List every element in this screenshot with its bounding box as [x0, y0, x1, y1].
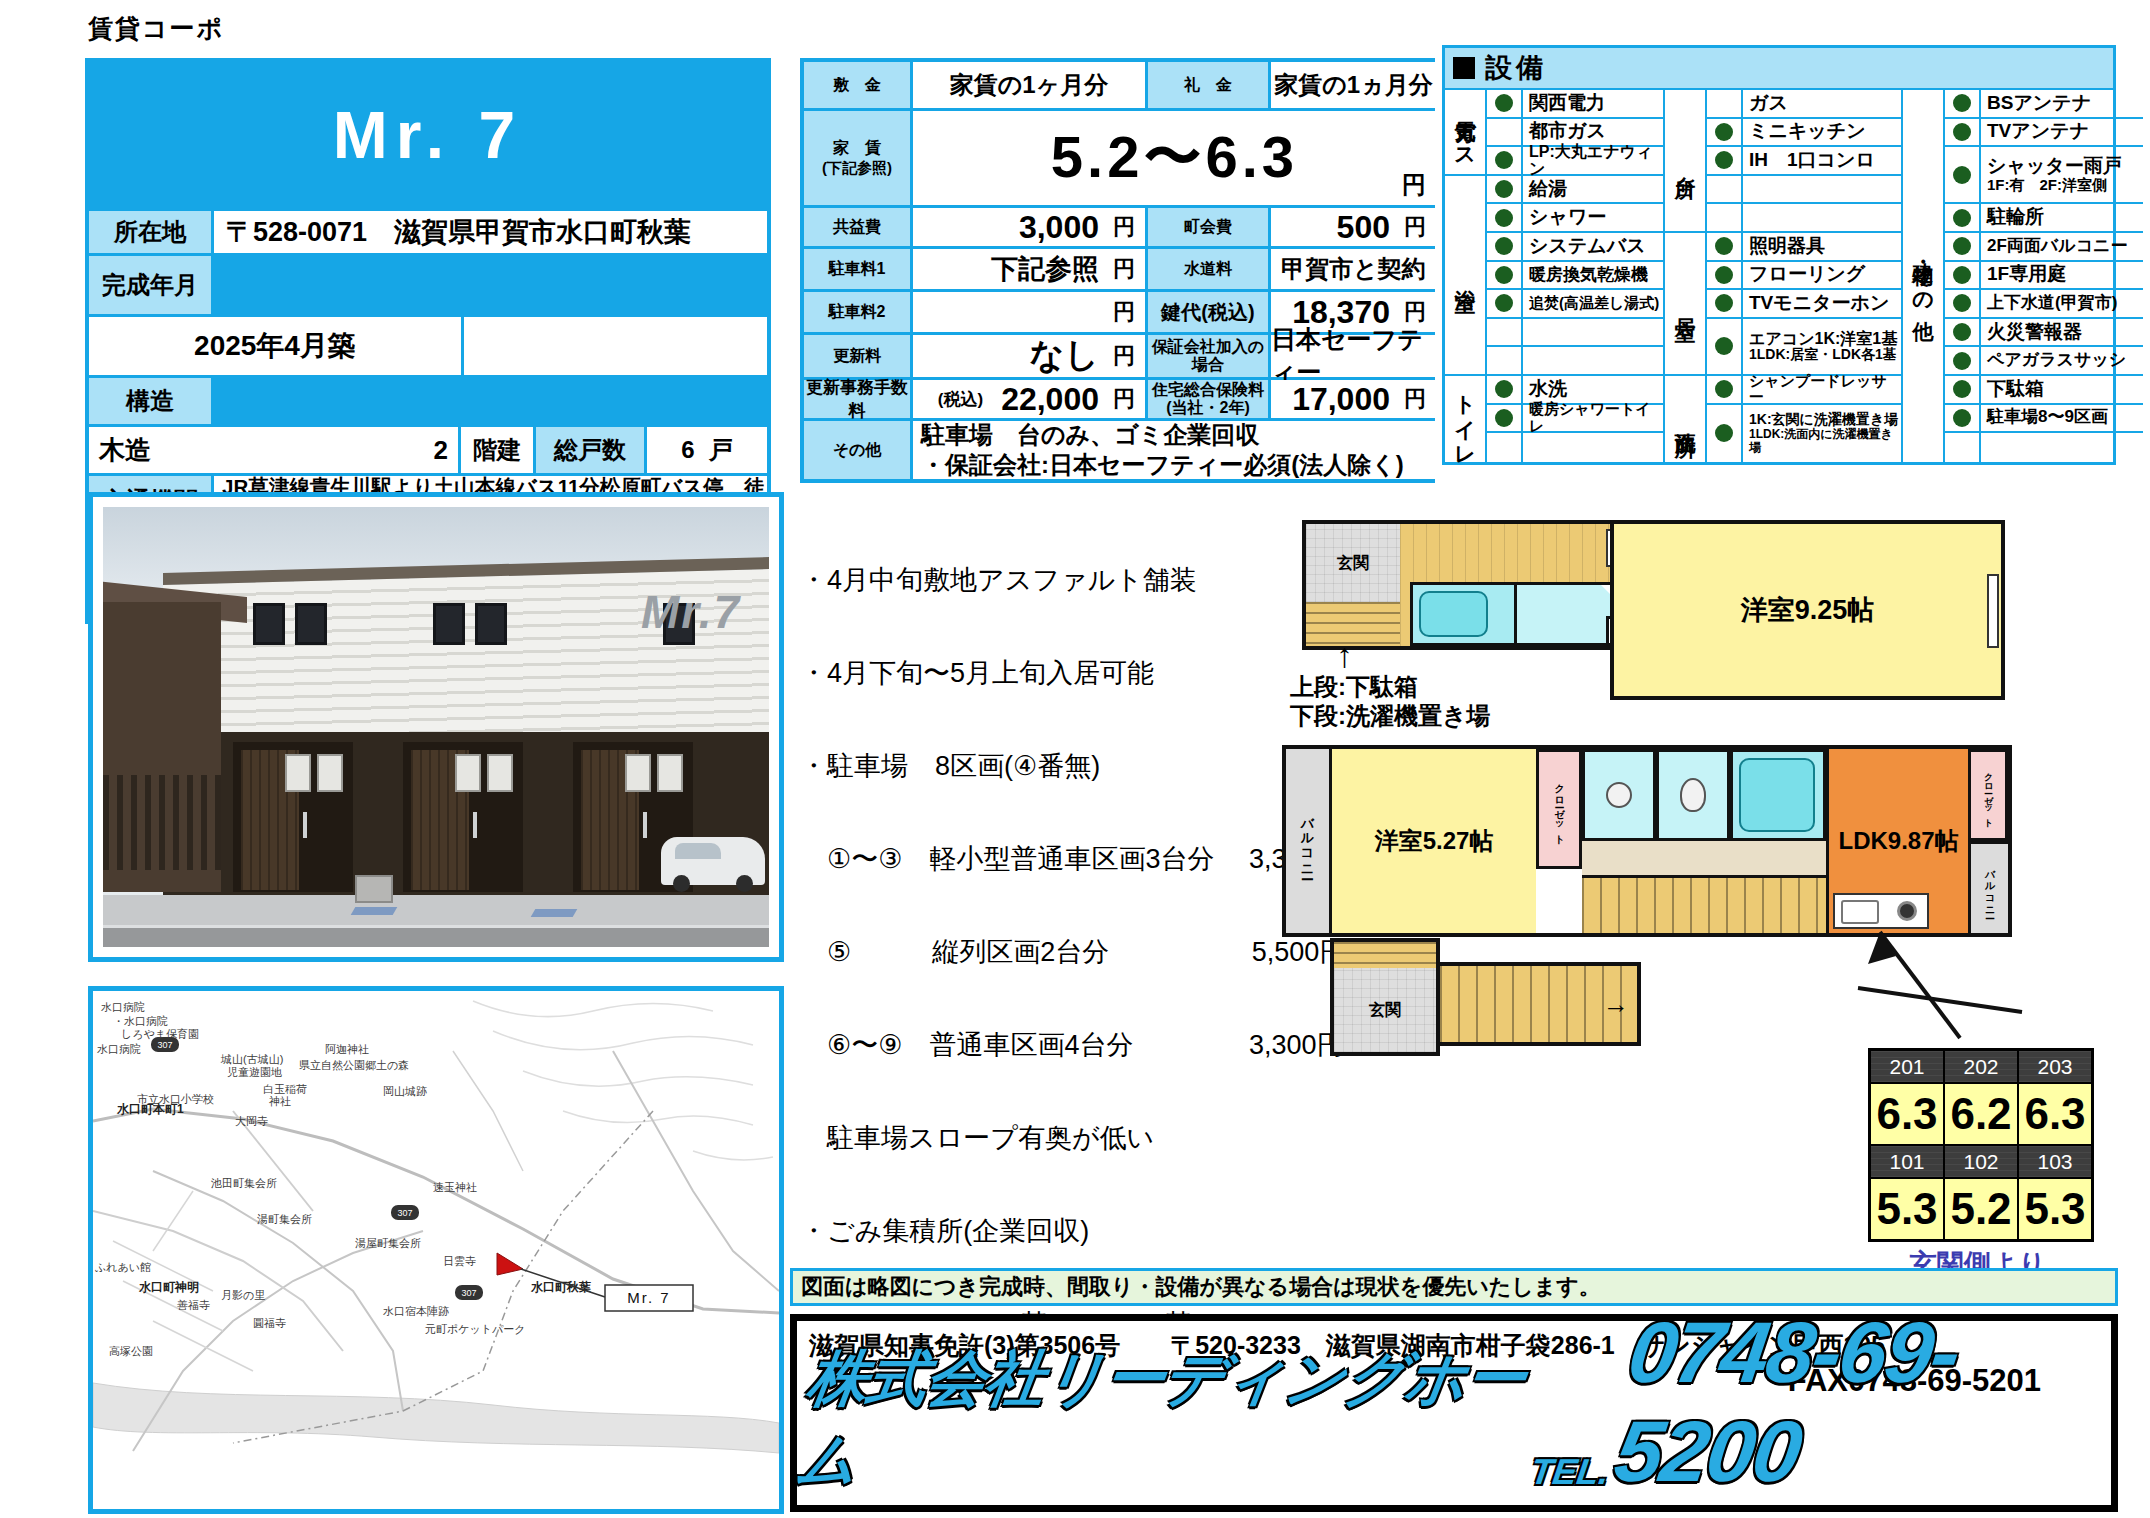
insurance-label: 住宅総合保険料 (当社・2年)	[1148, 380, 1268, 418]
photo-window	[475, 603, 507, 645]
plan2-bath-module	[1730, 749, 1826, 841]
company-tel: 0748-69-5200	[1609, 1303, 2117, 1501]
photo-meter-boxes	[285, 754, 343, 792]
town-fee-label: 町会費	[1148, 208, 1268, 246]
parking1-unit: 円	[1113, 254, 1135, 284]
map-label: 児童遊園地	[227, 1066, 282, 1078]
equipment-dot	[1707, 119, 1743, 146]
equipment-dot	[1487, 262, 1523, 289]
equipment-item: 照明器具	[1749, 236, 1901, 257]
plan2-genkan-steps	[1334, 942, 1436, 968]
route-number: 307	[157, 1040, 172, 1050]
equipment-dot	[1707, 204, 1743, 231]
building-photo: Mr.7	[103, 507, 769, 947]
equipment-dot	[1487, 376, 1523, 403]
floorplan-1ldk: バルコニー 洋室5.27帖 クローゼット LDK9.87帖 クローゼット バルコ…	[1282, 745, 2012, 937]
keymoney-label: 礼 金	[1148, 62, 1268, 108]
room-number: 101	[1871, 1146, 1943, 1177]
parking2-cell: 円	[913, 292, 1145, 332]
units-value: 6	[681, 436, 694, 464]
plan1-window	[1987, 574, 1999, 648]
other-value: 駐車場 台のみ、ゴミ企業回収 ・保証会社:日本セーフティー必須(法人除く)	[913, 421, 1436, 479]
equipment-dot	[1945, 319, 1981, 346]
plan1-room-label: 洋室9.25帖	[1741, 592, 1875, 628]
equipment-dot	[1487, 204, 1523, 231]
parking2-unit: 円	[1113, 297, 1135, 327]
plan2-closet-mid-label: クローゼット	[1554, 777, 1564, 840]
equipment-dot	[1945, 204, 1981, 231]
plan2-balcony-left-label: バルコニー	[1301, 809, 1314, 873]
equipment-dot	[1487, 319, 1523, 346]
equipment-item: シャッター雨戸	[1987, 156, 2143, 177]
photo-window	[433, 603, 465, 645]
insurance-cell: 17,000 円	[1271, 380, 1436, 418]
equipment-group-2: 台所 居室 洗面所 ガス ミニキッチン IH 1口コンロ 照明器具 フローリング…	[1665, 90, 1903, 462]
map-label: 湯町集会所	[257, 1213, 312, 1225]
equipment-item: 給湯	[1529, 179, 1663, 200]
equipment-dot	[1945, 233, 1981, 260]
common-fee-cell: 3,000 円	[913, 208, 1145, 246]
plan2-basin-room	[1582, 749, 1656, 841]
company-name-line: 株式会社リーディングホーム TEL. 0748-69-5200	[791, 1303, 2117, 1501]
photo-window	[295, 603, 327, 645]
equipment-category: 電気ガス	[1445, 90, 1485, 176]
note-line: ・4月下旬〜5月上旬入居可能	[800, 658, 1320, 689]
company-name: 株式会社リーディングホーム	[791, 1339, 1550, 1501]
common-fee-value: 3,000	[1019, 209, 1099, 246]
key-fee-label: 鍵代(税込)	[1148, 292, 1268, 332]
equipment-item: TVアンテナ	[1987, 121, 2143, 142]
room-number: 202	[1945, 1051, 2017, 1082]
photo-panel: Mr.7	[88, 492, 784, 962]
map-label: 圓福寺	[253, 1317, 286, 1329]
keymoney-value: 家賃の1ヵ月分	[1271, 62, 1436, 108]
common-fee-unit: 円	[1113, 212, 1135, 242]
equipment-item: 2F両面バルコニー	[1987, 237, 2143, 256]
built-label: 完成年月	[89, 256, 211, 314]
equipment-item: 水洗	[1529, 379, 1663, 400]
equipment-dot	[1707, 233, 1743, 260]
town-fee-value: 500	[1337, 209, 1390, 246]
rent-label: 家 賃 (下記参照)	[804, 111, 910, 205]
built-row: 2025年4月築	[89, 317, 767, 375]
equipment-dot	[1487, 233, 1523, 260]
map-label: 日雲寺	[443, 1255, 476, 1267]
route-number: 307	[397, 1208, 412, 1218]
plan1-bathtub	[1419, 591, 1488, 637]
equipment-item: 関西電力	[1529, 93, 1663, 114]
parking1-value: 下記参照	[991, 251, 1099, 287]
photo-door-handle	[303, 812, 307, 838]
plan2-stairs	[1582, 875, 1826, 933]
equipment-dot	[1945, 147, 1981, 202]
map-label: 水口町神明	[138, 1280, 199, 1294]
units-label: 総戸数	[536, 427, 644, 473]
room-rent: 6.2	[1945, 1084, 2017, 1144]
room-rent: 6.3	[1871, 1084, 1943, 1144]
renewal-unit: 円	[1113, 341, 1135, 371]
north-arrow	[1850, 920, 2030, 1045]
map-callout-label: Mr. 7	[627, 1289, 670, 1306]
map-label: 水口病院	[97, 1043, 141, 1055]
rent-label-main: 家 賃	[833, 138, 881, 159]
photo-meter-boxes	[455, 754, 513, 792]
equipment-item: IH 1口コンロ	[1749, 150, 1901, 171]
room-number: 103	[2019, 1146, 2091, 1177]
map-label: 池田町集会所	[210, 1177, 277, 1189]
deposit-value: 家賃の1ヶ月分	[913, 62, 1145, 108]
note-line: ・4月中旬敷地アスファルト舗装	[800, 565, 1320, 596]
equipment-dot	[1945, 290, 1981, 317]
equipment-category: 居室	[1665, 233, 1705, 376]
equipment-item: システムバス	[1529, 236, 1663, 257]
units-unit: 戸	[709, 434, 733, 466]
plan2-bathtub	[1739, 758, 1815, 832]
equipment-item: 火災警報器	[1987, 322, 2143, 343]
equipment-item: シャワー	[1529, 207, 1663, 228]
equipment-item: 1K:玄関に洗濯機置き場	[1749, 412, 1901, 427]
route-shield-307: 307	[391, 1205, 419, 1220]
plan1-caption-arrow: ↑	[1336, 636, 1353, 675]
equipment-dot	[1707, 376, 1743, 403]
photo-concrete-apron	[103, 895, 769, 925]
map-label: 月影の里	[221, 1289, 265, 1301]
plan2-genkan-label: 玄関	[1369, 1000, 1401, 1021]
plan2-balcony-right-label: バルコニー	[1985, 863, 1995, 913]
plan2-genkan-block: 玄関	[1330, 938, 1440, 1056]
note-line: ⑥〜⑨ 普通車区画4台分 3,300円	[800, 1030, 1320, 1061]
room-rent-grid: 201 202 203 6.3 6.2 6.3 101 102 103 5.3 …	[1868, 1048, 2094, 1242]
room-number: 201	[1871, 1051, 1943, 1082]
equipment-dot	[1707, 290, 1743, 317]
admin-fee-value: 22,000	[1001, 381, 1099, 418]
map-label: 速玉神社	[433, 1181, 477, 1193]
parking1-cell: 下記参照 円	[913, 249, 1145, 289]
renewal-cell: なし 円	[913, 335, 1145, 377]
equipment-category: トイレ	[1445, 376, 1485, 462]
other-line-2: ・保証会社:日本セーフティー必須(法人除く)	[921, 450, 1404, 480]
fee-table: 敷 金 家賃の1ヶ月分 礼 金 家賃の1ヵ月分 家 賃 (下記参照) 5.2〜6…	[800, 58, 1435, 483]
plan2-room-label: 洋室5.27帖	[1375, 825, 1494, 857]
map-label: 水口宿本陣跡	[383, 1305, 449, 1317]
insurance-unit: 円	[1404, 384, 1426, 414]
water-label: 水道料	[1148, 249, 1268, 289]
plan2-toilet-icon	[1680, 778, 1706, 812]
photo-entrance-bay	[233, 742, 353, 892]
equipment-category: 洗面所	[1665, 376, 1705, 462]
plan1-western-room: 洋室9.25帖	[1610, 520, 2005, 700]
company-tel-prefix: TEL.	[1528, 1451, 1612, 1493]
plan1-genkan: 玄関	[1306, 524, 1400, 602]
built-value: 2025年4月築	[89, 317, 461, 375]
photo-ac-unit	[355, 875, 393, 903]
map-label: 神社	[269, 1095, 291, 1107]
rental-flyer: 賃貸コーポ Mr. 7 所在地 〒528-0071 滋賀県甲賀市水口町秋葉 完成…	[0, 0, 2150, 1518]
equipment-item: シャンプードレッサー	[1749, 373, 1901, 406]
photo-building-logo: Mr.7	[641, 585, 741, 639]
map-label: 元町ポケットパーク	[425, 1323, 526, 1335]
structure-row: 木造 2 階建 総戸数 6 戸	[89, 427, 767, 473]
plan2-bathtub-room	[1733, 752, 1823, 838]
guarantor-label: 保証会社加入の場合	[1148, 335, 1268, 377]
area-map: 307 307 307 水口病院 ・水口病院 しろやま保育園 水口病院 城山(古…	[93, 991, 779, 1461]
equipment-item: 都市ガス	[1529, 121, 1663, 142]
water-value: 甲賀市と契約	[1271, 249, 1436, 289]
equipment-item-sub: 1F:有 2F:洋室側	[1987, 177, 2143, 194]
parking1-label: 駐車料1	[804, 249, 910, 289]
structure-value: 木造	[99, 433, 151, 468]
equipment-group-1: 電気ガス 浴室 トイレ 関西電力 都市ガス LP:大丸エナウィン 給湯 シャワー…	[1445, 90, 1665, 462]
equipment-item: 下駄箱	[1987, 379, 2143, 400]
structure-label: 構造	[89, 378, 211, 424]
equipment-category: 浴室	[1445, 176, 1485, 376]
location-value: 〒528-0071 滋賀県甲賀市水口町秋葉	[214, 211, 767, 253]
photo-parking-mark	[531, 909, 578, 917]
map-label: 善福寺	[177, 1299, 210, 1311]
map-label: 白玉稲荷	[263, 1083, 307, 1095]
equipment-body: 電気ガス 浴室 トイレ 関西電力 都市ガス LP:大丸エナウィン 給湯 シャワー…	[1445, 90, 2113, 462]
equipment-item: BSアンテナ	[1987, 93, 2143, 114]
rent-value-cell: 5.2〜6.3 円	[913, 111, 1436, 205]
map-label: ふれあい館	[95, 1261, 151, 1273]
equipment-dot	[1945, 376, 1981, 403]
equipment-category: 台所	[1665, 90, 1705, 233]
equipment-item-sub: 1LDK:洗面内に洗濯機置き場	[1749, 428, 1901, 454]
admin-fee-label: 更新事務手数料	[804, 380, 910, 418]
equipment-item: 1F専用庭	[1987, 264, 2143, 285]
equipment-item: TVモニターホン	[1749, 293, 1901, 314]
map-label: 水口病院	[101, 1001, 145, 1013]
renewal-label: 更新料	[804, 335, 910, 377]
photo-door-handle	[643, 812, 647, 838]
equipment-item: 暖房換気乾燥機	[1529, 266, 1663, 285]
location-label: 所在地	[89, 211, 211, 253]
section-square-icon	[1453, 57, 1475, 79]
room-number: 102	[1945, 1146, 2017, 1177]
photo-window	[253, 603, 285, 645]
room-rent: 5.3	[2019, 1179, 2091, 1239]
map-label: 水口町本町1	[116, 1102, 184, 1116]
photo-meter-boxes	[625, 754, 683, 792]
equipment-group-3: 建物・その他 BSアンテナ TVアンテナ シャッター雨戸1F:有 2F:洋室側 …	[1903, 90, 2143, 462]
plan2-corridor	[1582, 841, 1826, 875]
route-number: 307	[461, 1288, 476, 1298]
map-label: 岡山城跡	[383, 1085, 427, 1097]
photo-entrance-bay	[403, 742, 523, 892]
equipment-dot	[1487, 119, 1523, 146]
guarantor-value: 日本セーフティー	[1271, 335, 1436, 377]
plan1-steps	[1306, 602, 1400, 646]
rent-label-note: (下記参照)	[822, 159, 892, 178]
plan1-bath-module	[1410, 582, 1620, 646]
equipment-item: エアコン1K:洋室1基	[1749, 330, 1901, 348]
room-rent: 5.3	[1871, 1179, 1943, 1239]
equipment-dot	[1707, 262, 1743, 289]
admin-fee-cell: (税込) 22,000 円	[913, 380, 1145, 418]
plan2-western-room: 洋室5.27帖	[1332, 749, 1536, 933]
insurance-label-1: 住宅総合保険料	[1152, 381, 1264, 399]
insurance-value: 17,000	[1292, 381, 1390, 418]
equipment-dot	[1707, 176, 1743, 203]
equipment-dot	[1487, 90, 1523, 117]
company-tel-group: TEL. 0748-69-5200	[1527, 1303, 2117, 1501]
renewal-value: なし	[1029, 333, 1099, 379]
note-line: ⑤ 縦列区画2台分 5,500円	[800, 937, 1320, 968]
map-label: 大岡寺	[235, 1115, 268, 1127]
equipment-dot	[1707, 405, 1743, 462]
plan2-closet-right: クローゼット	[1968, 749, 2008, 841]
town-fee-unit: 円	[1404, 212, 1426, 242]
equipment-item: ミニキッチン	[1749, 121, 1901, 142]
plan1-caption: 上段:下駄箱 下段:洗濯機置き場	[1290, 672, 1491, 730]
equipment-dot	[1945, 347, 1981, 374]
units-cell: 6 戸	[647, 427, 767, 473]
plan2-genkan: 玄関	[1334, 968, 1436, 1052]
floors-label: 階建	[461, 427, 533, 473]
equipment-dot	[1945, 262, 1981, 289]
plan1-caption-line1: 上段:下駄箱	[1290, 672, 1491, 701]
plan2-balcony-left: バルコニー	[1286, 749, 1332, 933]
equipment-dot	[1945, 90, 1981, 117]
plan2-closet-mid: クローゼット	[1536, 749, 1582, 869]
plan1-caption-line2: 下段:洗濯機置き場	[1290, 701, 1491, 730]
structure-value-cell: 木造 2	[89, 427, 458, 473]
map-label: 湯屋町集会所	[355, 1237, 421, 1249]
map-label: しろやま保育園	[121, 1028, 199, 1040]
photo-fence	[103, 775, 221, 870]
equipment-dot	[1945, 119, 1981, 146]
equipment-dot	[1945, 405, 1981, 432]
admin-fee-tax-note: (税込)	[938, 388, 983, 411]
equipment-item-sub: 1LDK:居室・LDK各1基	[1749, 347, 1901, 362]
plan2-closet-right-label: クローゼット	[1984, 766, 1993, 823]
map-label: 阿迦神社	[325, 1043, 369, 1055]
room-number: 203	[2019, 1051, 2091, 1082]
note-line: ・駐車場 8区画(④番無)	[800, 751, 1320, 782]
property-title-box: Mr. 7	[89, 62, 767, 208]
plan2-entry-corridor: →	[1436, 962, 1641, 1046]
company-box: 滋賀県知事免許(3)第3506号 〒520-3233 滋賀県湖南市柑子袋286-…	[790, 1314, 2118, 1512]
town-fee-cell: 500 円	[1271, 208, 1436, 246]
map-label: 高塚公園	[109, 1345, 153, 1357]
note-line: 駐車場スロープ有奥が低い	[800, 1123, 1320, 1154]
parking2-label: 駐車料2	[804, 292, 910, 332]
rent-unit: 円	[1402, 169, 1426, 201]
equipment-dot	[1487, 347, 1523, 374]
common-fee-label: 共益費	[804, 208, 910, 246]
equipment-item: 駐輪所	[1987, 207, 2143, 228]
photo-car	[661, 837, 765, 885]
room-rent: 6.3	[2019, 1084, 2091, 1144]
equipment-dot	[1487, 405, 1523, 432]
equipment-header: 設備	[1445, 48, 2113, 90]
equipment-category: 建物・その他	[1903, 90, 1943, 462]
equipment-item: ガス	[1749, 93, 1901, 114]
property-title: Mr. 7	[333, 97, 523, 173]
photo-road	[103, 925, 769, 947]
map-panel: 307 307 307 水口病院 ・水口病院 しろやま保育園 水口病院 城山(古…	[88, 986, 784, 1514]
map-label: 県立自然公園郷土の森	[299, 1059, 409, 1071]
plan1-shower-room	[1514, 585, 1618, 643]
rent-value: 5.2〜6.3	[1051, 119, 1298, 197]
equipment-item: 駐車場8〜9区画	[1987, 408, 2143, 427]
plan2-toilet-room	[1656, 749, 1730, 841]
plan2-ldk: LDK9.87帖	[1826, 749, 1968, 933]
equipment-panel: 設備 電気ガス 浴室 トイレ 関西電力 都市ガス LP:大丸エナウィン 給湯 シ…	[1442, 45, 2116, 465]
built-empty-cell	[464, 317, 767, 375]
equipment-item: 暖房シャワートイレ	[1529, 401, 1663, 434]
plan1-genkan-label: 玄関	[1337, 553, 1369, 574]
plan2-ldk-label: LDK9.87帖	[1838, 825, 1958, 857]
other-line-1: 駐車場 台のみ、ゴミ企業回収	[921, 420, 1259, 450]
equipment-dot	[1487, 147, 1523, 174]
equipment-dot	[1487, 176, 1523, 203]
map-label: 城山(古城山)	[220, 1053, 283, 1065]
equipment-dot	[1707, 147, 1743, 174]
plan2-burner	[1897, 901, 1917, 921]
room-rent: 5.2	[1945, 1179, 2017, 1239]
route-shield-307: 307	[455, 1285, 483, 1300]
equipment-item: LP:大丸エナウィン	[1529, 143, 1663, 178]
equipment-item: 上下水道(甲賀市)	[1987, 294, 2143, 313]
equipment-dot	[1707, 90, 1743, 117]
flyer-type-label: 賃貸コーポ	[88, 12, 224, 45]
equipment-dot	[1487, 433, 1523, 462]
photo-door-handle	[473, 812, 477, 838]
structure-floors-num: 2	[434, 435, 448, 466]
plan2-stairs-arrow: →	[1603, 989, 1629, 1020]
plan2-basin-icon	[1606, 782, 1632, 808]
plan1-bathtub-room	[1413, 585, 1514, 643]
admin-fee-unit: 円	[1113, 384, 1135, 414]
equipment-dot	[1707, 319, 1743, 374]
deposit-label: 敷 金	[804, 62, 910, 108]
equipment-item: フローリング	[1749, 264, 1901, 285]
disclaimer-bar: 図面は略図につき完成時、間取り・設備が異なる場合は現状を優先いたします。	[790, 1268, 2118, 1306]
equipment-item: 追焚(高温差し湯式)	[1529, 295, 1663, 312]
map-label: ・水口病院	[113, 1015, 168, 1027]
photo-parking-mark	[351, 907, 398, 915]
other-label: その他	[804, 421, 910, 479]
equipment-dot	[1945, 433, 1981, 462]
equipment-dot	[1487, 290, 1523, 317]
insurance-label-2: (当社・2年)	[1166, 399, 1250, 417]
equipment-item: ペアガラスサッシ	[1987, 351, 2143, 370]
equipment-title: 設備	[1485, 50, 1547, 86]
note-line: ・ごみ集積所(企業回収)	[800, 1216, 1320, 1247]
note-line: ①〜③ 軽小型普通車区画3台分 3,300円	[800, 844, 1320, 875]
